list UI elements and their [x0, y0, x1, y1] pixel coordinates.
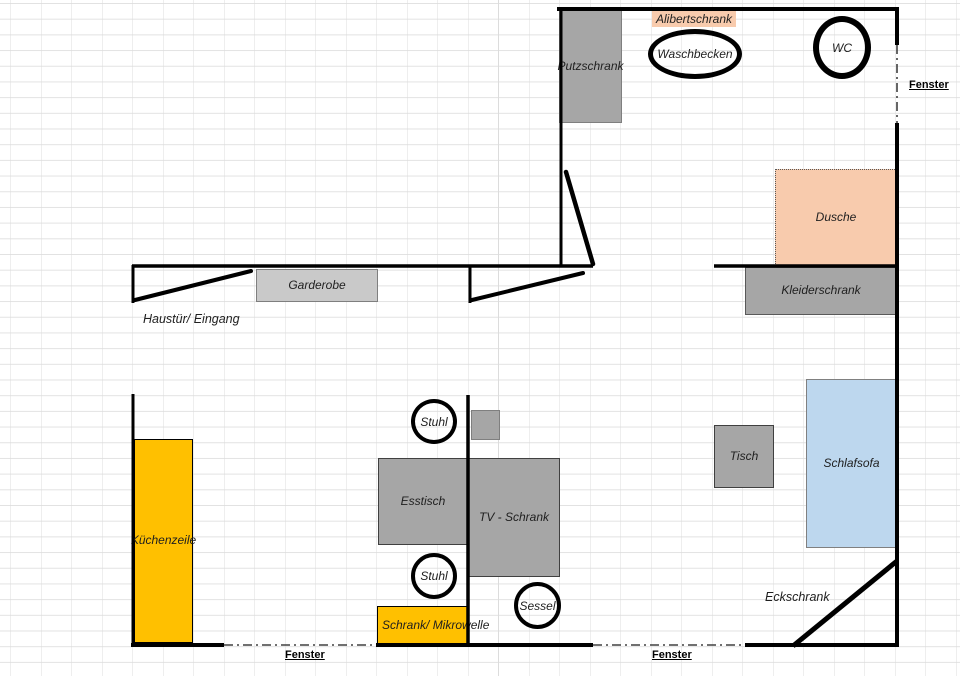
haustuer-eingang-label: Haustür/ Eingang [143, 312, 240, 327]
schlafsofa-label: Schlafsofa [823, 456, 879, 472]
putzschrank-label: Putzschrank [557, 59, 623, 75]
fenster-bottom-center-label: Fenster [652, 649, 692, 662]
kleiderschrank-label: Kleiderschrank [781, 283, 860, 299]
tv-schrank-label: TV - Schrank [479, 510, 549, 526]
stuhl-1-label: Stuhl [420, 415, 447, 429]
tisch: Tisch [714, 425, 774, 488]
esstisch: Esstisch [378, 458, 468, 545]
furniture-layer: PutzschrankGarderobeDuscheKleiderschrank… [0, 0, 960, 676]
kuechenzeile-label: Küchenzeile [131, 533, 196, 549]
stuhl-1: Stuhl [411, 399, 457, 444]
sessel: Sessel [514, 582, 561, 629]
side-square [471, 410, 500, 440]
schlafsofa: Schlafsofa [806, 379, 897, 548]
tv-schrank: TV - Schrank [468, 458, 560, 577]
eckschrank-label: Eckschrank [765, 590, 830, 605]
schrank-mikrowelle: Schrank/ Mikrowelle [377, 606, 468, 645]
stuhl-2-label: Stuhl [420, 569, 447, 583]
kuechenzeile: Küchenzeile [134, 439, 193, 643]
waschbecken-label: Waschbecken [657, 47, 732, 61]
wc-label: WC [832, 41, 852, 55]
dusche: Dusche [775, 169, 897, 266]
fenster-bottom-left-label: Fenster [285, 649, 325, 662]
esstisch-label: Esstisch [401, 494, 446, 510]
schrank-mikrowelle-label: Schrank/ Mikrowelle [378, 618, 489, 634]
stuhl-2: Stuhl [411, 553, 457, 599]
wc: WC [813, 16, 871, 79]
kleiderschrank: Kleiderschrank [745, 267, 897, 315]
alibertschrank-label: Alibertschrank [652, 11, 736, 27]
sessel-label: Sessel [519, 599, 555, 613]
garderobe-label: Garderobe [288, 278, 345, 294]
putzschrank: Putzschrank [559, 10, 622, 123]
tisch-label: Tisch [730, 449, 759, 465]
floorplan-canvas: PutzschrankGarderobeDuscheKleiderschrank… [0, 0, 960, 676]
dusche-label: Dusche [816, 210, 857, 226]
garderobe: Garderobe [256, 269, 378, 302]
waschbecken: Waschbecken [648, 29, 742, 79]
fenster-right-label: Fenster [909, 79, 949, 92]
